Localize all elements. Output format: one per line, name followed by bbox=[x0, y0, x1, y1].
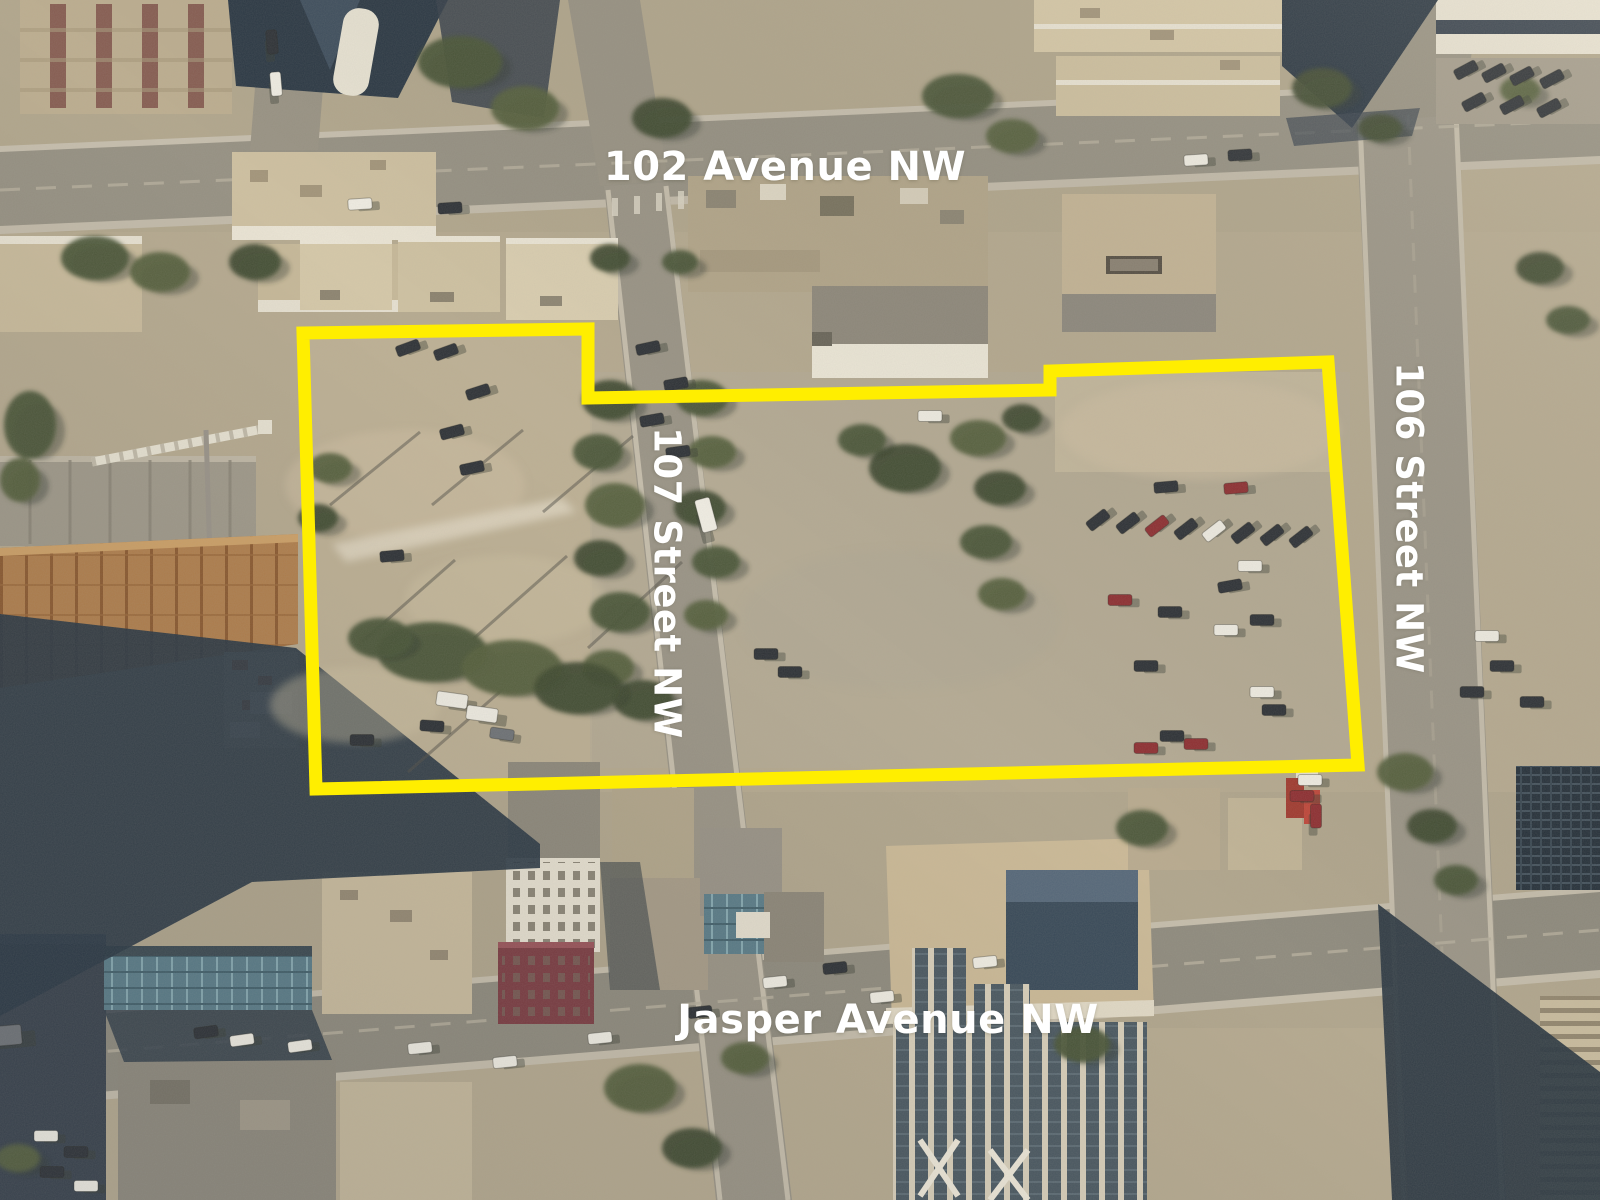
aerial-map: 102 Avenue NW 107 Street NW 106 Street N… bbox=[0, 0, 1600, 1200]
street-label-107-street: 107 Street NW bbox=[649, 427, 686, 739]
street-label-102-avenue: 102 Avenue NW bbox=[604, 147, 966, 187]
street-label-106-street: 106 Street NW bbox=[1391, 362, 1428, 674]
street-label-jasper-avenue: Jasper Avenue NW bbox=[677, 1000, 1098, 1040]
